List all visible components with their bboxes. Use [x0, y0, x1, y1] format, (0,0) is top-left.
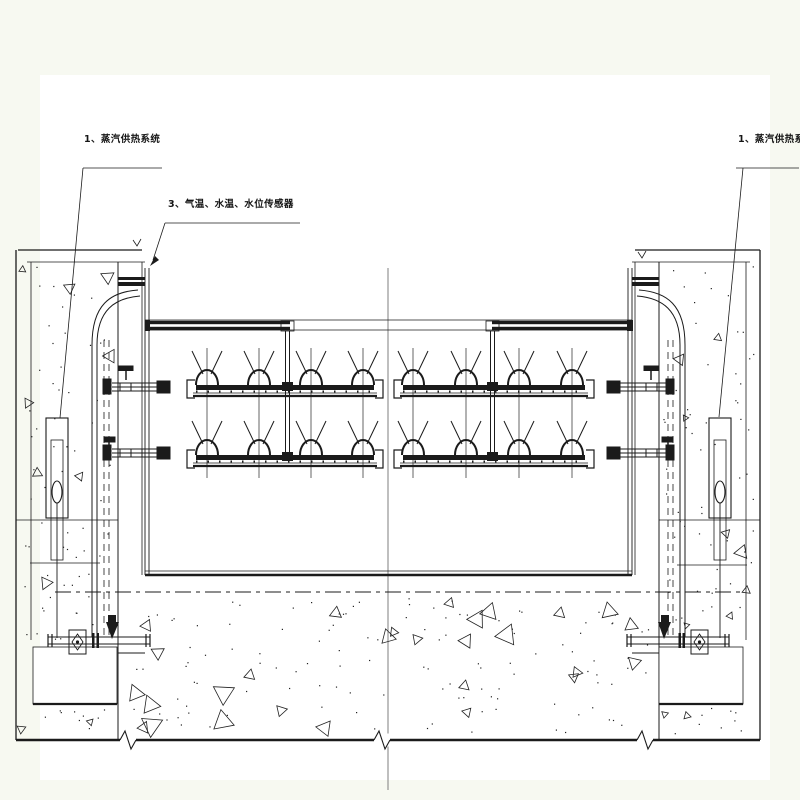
- stipple-dot: [701, 715, 702, 716]
- right-pipe-flange: [632, 277, 659, 280]
- stipple-dot: [694, 302, 695, 303]
- stipple-dot: [377, 639, 378, 640]
- stipple-dot: [587, 671, 588, 672]
- stipple-dot: [594, 660, 595, 661]
- stipple-dot: [427, 728, 428, 729]
- stipple-dot: [478, 663, 479, 664]
- stipple-dot: [498, 620, 499, 621]
- stipple-dot: [76, 557, 77, 558]
- stipple-dot: [519, 611, 520, 612]
- stipple-dot: [276, 667, 277, 668]
- stipple-dot: [172, 620, 173, 621]
- stipple-dot: [26, 634, 27, 635]
- stipple-dot: [674, 537, 675, 538]
- stipple-dot: [134, 709, 135, 710]
- left-pier-recess: [33, 647, 117, 704]
- stipple-dot: [65, 333, 66, 334]
- stipple-dot: [61, 367, 62, 368]
- stipple-dot: [746, 474, 747, 475]
- stipple-dot: [580, 633, 581, 634]
- stipple-dot: [319, 685, 320, 686]
- stipple-dot: [79, 576, 80, 577]
- stipple-dot: [687, 409, 688, 410]
- stipple-dot: [428, 668, 429, 669]
- stipple-dot: [29, 546, 30, 547]
- label-steam-system-left: 1、蒸汽供热系统: [84, 131, 160, 145]
- stipple-dot: [74, 711, 75, 712]
- stipple-dot: [710, 544, 711, 545]
- stipple-dot: [740, 383, 741, 384]
- stipple-dot: [47, 575, 48, 576]
- stipple-dot: [562, 644, 563, 645]
- stipple-dot: [740, 607, 741, 608]
- stipple-dot: [514, 674, 515, 675]
- stipple-dot: [439, 639, 440, 640]
- stipple-dot: [690, 414, 691, 415]
- stipple-dot: [578, 714, 579, 715]
- stipple-dot: [681, 618, 682, 619]
- stipple-dot: [197, 683, 198, 684]
- stipple-dot: [751, 562, 752, 563]
- stipple-dot: [36, 428, 37, 429]
- stipple-dot: [90, 345, 91, 346]
- stipple-dot: [345, 613, 346, 614]
- right-pier-recess: [659, 647, 743, 704]
- stipple-dot: [356, 712, 357, 713]
- stipple-dot: [186, 706, 187, 707]
- stipple-dot: [67, 532, 68, 533]
- label-steam-system-right: 1、蒸汽供热系统: [738, 131, 800, 145]
- stipple-dot: [711, 288, 712, 289]
- stipple-dot: [424, 629, 425, 630]
- stipple-dot: [673, 270, 674, 271]
- stipple-dot: [596, 674, 597, 675]
- stipple-dot: [166, 719, 167, 720]
- stipple-dot: [321, 707, 322, 708]
- stipple-triangle: [25, 398, 34, 408]
- stipple-dot: [585, 622, 586, 623]
- stipple-dot: [711, 708, 712, 709]
- stipple-dot: [197, 625, 198, 626]
- stipple-dot: [695, 323, 696, 324]
- stipple-dot: [702, 610, 703, 611]
- stipple-dot: [259, 653, 260, 654]
- stipple-dot: [359, 602, 360, 603]
- stipple-dot: [110, 465, 111, 466]
- stipple-dot: [721, 727, 722, 728]
- stipple-dot: [42, 608, 43, 609]
- stipple-dot: [72, 585, 73, 586]
- stipple-dot: [239, 605, 240, 606]
- stipple-dot: [107, 533, 108, 534]
- stipple-dot: [61, 712, 62, 713]
- stipple-dot: [692, 433, 693, 434]
- stipple-dot: [748, 429, 749, 430]
- stipple-dot: [36, 267, 37, 268]
- stipple-triangle: [19, 266, 26, 272]
- stipple-dot: [730, 711, 731, 712]
- stipple-dot: [25, 586, 26, 587]
- stipple-dot: [100, 343, 101, 344]
- stipple-dot: [311, 602, 312, 603]
- stipple-dot: [459, 614, 460, 615]
- stipple-dot: [177, 699, 178, 700]
- stipple-dot: [44, 487, 45, 488]
- stipple-dot: [190, 647, 191, 648]
- stipple-dot: [136, 669, 137, 670]
- stipple-dot: [741, 730, 742, 731]
- stipple-dot: [717, 569, 718, 570]
- stipple-dot: [29, 410, 30, 411]
- stipple-dot: [678, 512, 679, 513]
- stipple-dot: [88, 574, 89, 575]
- stipple-dot: [521, 612, 522, 613]
- stipple-dot: [664, 422, 665, 423]
- stipple-dot: [535, 653, 536, 654]
- stipple-dot: [711, 606, 712, 607]
- stipple-dot: [554, 704, 555, 705]
- stipple-dot: [734, 720, 735, 721]
- stipple-dot: [753, 354, 754, 355]
- stipple-dot: [735, 712, 736, 713]
- stipple-dot: [52, 343, 53, 344]
- stipple-dot: [737, 402, 738, 403]
- stipple-dot: [445, 617, 446, 618]
- stipple-dot: [229, 624, 230, 625]
- stipple-dot: [181, 724, 182, 725]
- stipple-dot: [701, 507, 702, 508]
- stipple-dot: [645, 672, 646, 673]
- stipple-dot: [84, 550, 85, 551]
- stipple-dot: [676, 390, 677, 391]
- stipple-dot: [367, 637, 368, 638]
- stipple-dot: [592, 707, 593, 708]
- stipple-dot: [383, 694, 384, 695]
- left-pipe-flange: [118, 277, 145, 280]
- stipple-dot: [753, 266, 754, 267]
- stipple-dot: [157, 614, 158, 615]
- stipple-dot: [369, 660, 370, 661]
- stipple-dot: [730, 583, 731, 584]
- stipple-triangle: [17, 726, 26, 734]
- stipple-dot: [666, 469, 667, 470]
- stipple-dot: [49, 325, 50, 326]
- stipple-dot: [99, 555, 100, 556]
- stipple-dot: [339, 650, 340, 651]
- stipple-dot: [735, 400, 736, 401]
- stipple-dot: [142, 669, 143, 670]
- stipple-dot: [100, 500, 101, 501]
- stipple-dot: [232, 602, 233, 603]
- stipple-dot: [58, 389, 59, 390]
- stipple-dot: [88, 596, 89, 597]
- stipple-dot: [743, 332, 744, 333]
- stipple-dot: [60, 638, 61, 639]
- stipple-dot: [753, 499, 754, 500]
- stipple-dot: [343, 614, 344, 615]
- stipple-dot: [701, 513, 702, 514]
- stipple-dot: [715, 444, 716, 445]
- stipple-dot: [450, 683, 451, 684]
- stipple-dot: [715, 588, 716, 589]
- stipple-dot: [705, 272, 706, 273]
- stipple-dot: [159, 713, 160, 714]
- stipple-dot: [148, 616, 149, 617]
- stipple-dot: [565, 732, 566, 733]
- stipple-dot: [227, 715, 228, 716]
- label-sensors: 3、气温、水温、水位传感器: [168, 196, 294, 210]
- stipple-dot: [246, 691, 247, 692]
- stipple-dot: [293, 608, 294, 609]
- stipple-dot: [60, 710, 61, 711]
- stipple-dot: [74, 295, 75, 296]
- stipple-dot: [104, 709, 105, 710]
- stipple-dot: [735, 373, 736, 374]
- stipple-dot: [45, 717, 46, 718]
- stipple-dot: [458, 698, 459, 699]
- stipple-dot: [68, 392, 69, 393]
- stipple-dot: [340, 666, 341, 667]
- stipple-dot: [497, 698, 498, 699]
- stipple-dot: [727, 540, 728, 541]
- stipple-dot: [597, 682, 598, 683]
- stipple-dot: [491, 696, 492, 697]
- stipple-dot: [296, 671, 297, 672]
- stipple-dot: [260, 663, 261, 664]
- stipple-dot: [433, 608, 434, 609]
- stipple-dot: [712, 593, 713, 594]
- stipple-dot: [76, 613, 77, 614]
- stipple-dot: [699, 724, 700, 725]
- stipple-dot: [613, 720, 614, 721]
- stipple-dot: [232, 649, 233, 650]
- stipple-dot: [496, 709, 497, 710]
- stipple-dot: [686, 427, 687, 428]
- stipple-dot: [53, 446, 54, 447]
- stipple-dot: [482, 711, 483, 712]
- stipple-dot: [700, 449, 701, 450]
- gate-elevation-drawing: [0, 0, 800, 800]
- stipple-dot: [572, 651, 573, 652]
- stipple-dot: [98, 718, 99, 719]
- stipple-dot: [642, 631, 643, 632]
- stipple-dot: [481, 689, 482, 690]
- stipple-dot: [91, 298, 92, 299]
- stipple-dot: [89, 728, 90, 729]
- stipple-dot: [442, 688, 443, 689]
- stipple-dot: [74, 450, 75, 451]
- stipple-dot: [353, 606, 354, 607]
- stipple-dot: [647, 644, 648, 645]
- stipple-dot: [83, 528, 84, 529]
- stipple-dot: [740, 419, 741, 420]
- stipple-dot: [669, 579, 670, 580]
- stipple-dot: [336, 687, 337, 688]
- stipple-dot: [406, 617, 407, 618]
- stipple-dot: [53, 286, 54, 287]
- stipple-dot: [753, 530, 754, 531]
- stipple-dot: [43, 610, 44, 611]
- stipple-dot: [556, 730, 557, 731]
- stipple-dot: [178, 717, 179, 718]
- stipple-dot: [423, 667, 424, 668]
- stipple-dot: [666, 493, 667, 494]
- stipple-dot: [467, 615, 468, 616]
- stipple-dot: [66, 446, 67, 447]
- stipple-dot: [205, 655, 206, 656]
- stipple-dot: [609, 719, 610, 720]
- stipple-dot: [39, 286, 40, 287]
- stipple-dot: [55, 639, 56, 640]
- stipple-dot: [188, 713, 189, 714]
- stipple-dot: [209, 726, 210, 727]
- stipple-dot: [699, 533, 700, 534]
- stipple-dot: [706, 422, 707, 423]
- stipple-dot: [409, 598, 410, 599]
- stipple-dot: [64, 585, 65, 586]
- stipple-dot: [79, 720, 80, 721]
- stipple-dot: [499, 688, 500, 689]
- stipple-dot: [514, 633, 515, 634]
- stipple-dot: [41, 522, 42, 523]
- stipple-dot: [329, 630, 330, 631]
- stipple-dot: [463, 697, 464, 698]
- stipple-dot: [307, 663, 308, 664]
- stipple-dot: [739, 477, 740, 478]
- engineering-drawing-sheet: 1、蒸汽供热系统 3、气温、水温、水位传感器 1、蒸汽供热系统: [0, 0, 800, 800]
- stipple-dot: [471, 732, 472, 733]
- stipple-dot: [39, 370, 40, 371]
- stipple-dot: [289, 688, 290, 689]
- stipple-dot: [83, 716, 84, 717]
- stipple-dot: [374, 728, 375, 729]
- stipple-dot: [621, 725, 622, 726]
- stipple-dot: [749, 358, 750, 359]
- stipple-dot: [409, 604, 410, 605]
- stipple-dot: [612, 623, 613, 624]
- stipple-dot: [186, 666, 187, 667]
- stipple-dot: [684, 286, 685, 287]
- stipple-dot: [53, 383, 54, 384]
- stipple-dot: [25, 545, 26, 546]
- stipple-dot: [67, 549, 68, 550]
- stipple-dot: [174, 618, 175, 619]
- stipple-dot: [50, 597, 51, 598]
- stipple-dot: [663, 419, 664, 420]
- stipple-dot: [675, 733, 676, 734]
- stipple-dot: [319, 641, 320, 642]
- stipple-dot: [648, 629, 649, 630]
- stipple-dot: [194, 682, 195, 683]
- stipple-dot: [480, 667, 481, 668]
- stipple-dot: [728, 295, 729, 296]
- stipple-dot: [33, 469, 34, 470]
- stipple-dot: [432, 723, 433, 724]
- stipple-dot: [282, 629, 283, 630]
- stipple-dot: [737, 331, 738, 332]
- stipple-dot: [350, 692, 351, 693]
- stipple-dot: [510, 663, 511, 664]
- stipple-dot: [445, 635, 446, 636]
- stipple-dot: [627, 668, 628, 669]
- stipple-dot: [187, 662, 188, 663]
- stipple-dot: [611, 684, 612, 685]
- stipple-dot: [62, 306, 63, 307]
- stipple-dot: [707, 364, 708, 365]
- stipple-dot: [676, 619, 677, 620]
- stipple-dot: [37, 633, 38, 634]
- stipple-dot: [333, 625, 334, 626]
- stipple-dot: [598, 612, 599, 613]
